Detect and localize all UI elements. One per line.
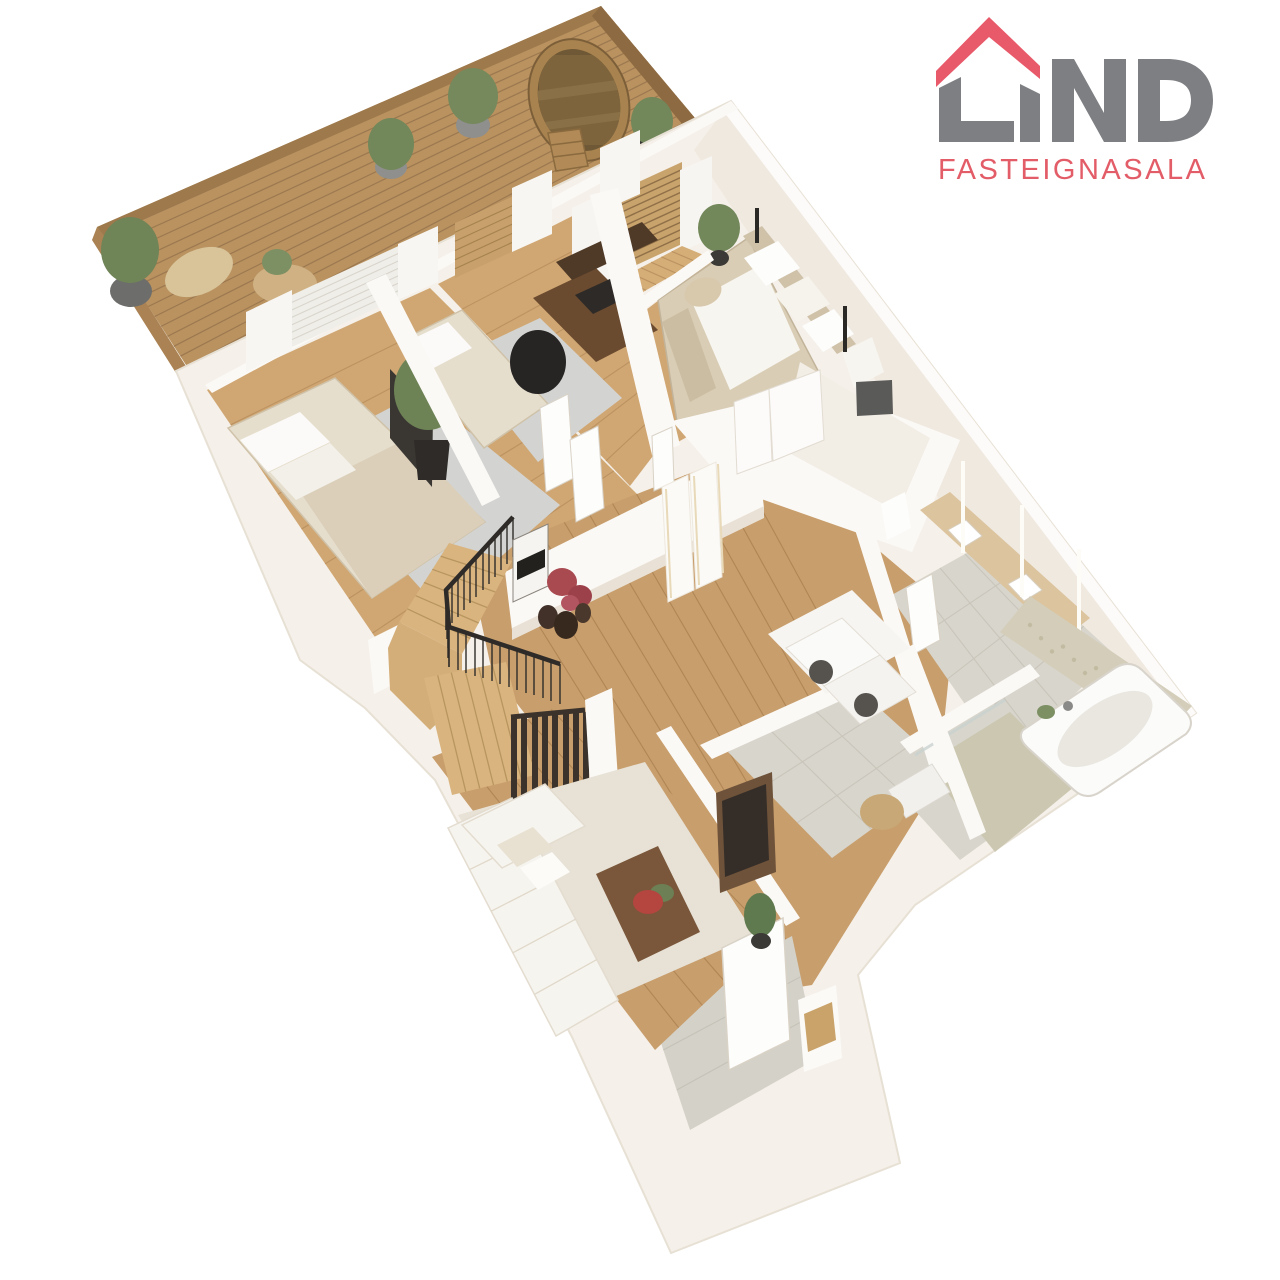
svg-text:FASTEIGNASALA: FASTEIGNASALA: [938, 154, 1207, 186]
